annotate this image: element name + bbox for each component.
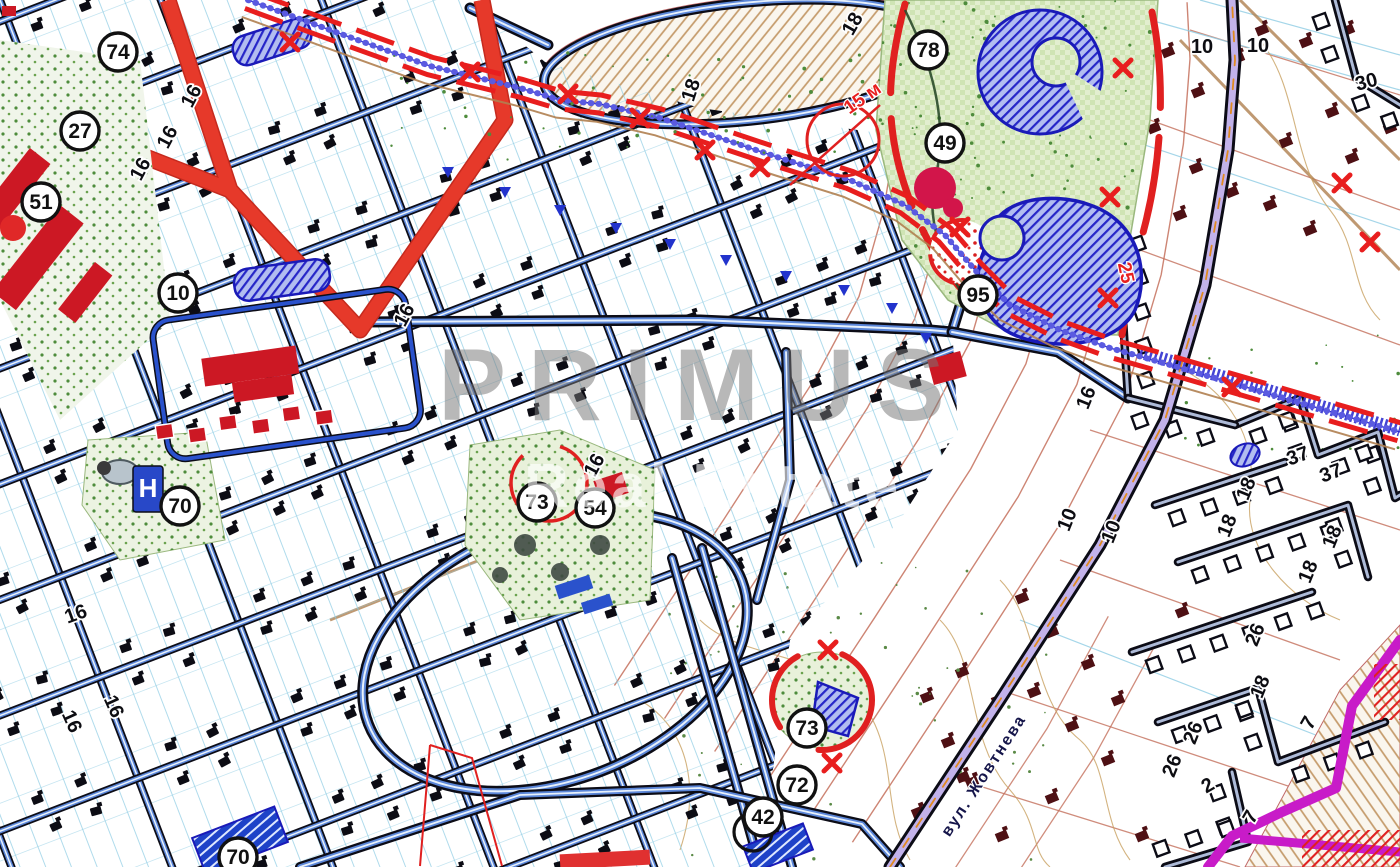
zone-marker-70: 70: [161, 487, 199, 525]
street-number-label: 10: [1191, 36, 1213, 58]
svg-text:72: 72: [785, 774, 808, 797]
street-number-label: 10: [1247, 35, 1269, 57]
zone-marker-95: 95: [959, 276, 997, 314]
street-number-label: 16: [153, 122, 183, 152]
svg-text:51: 51: [29, 191, 53, 214]
zone-marker-73: 73: [518, 483, 556, 521]
street-number-label: 26: [1158, 751, 1187, 780]
zone-marker-49: 49: [926, 124, 964, 162]
svg-text:70: 70: [168, 495, 191, 518]
svg-text:27: 27: [68, 120, 91, 143]
street-number-label: 7: [1296, 713, 1321, 734]
street-number-label: 18: [1294, 557, 1323, 586]
svg-text:70: 70: [226, 846, 249, 867]
svg-text:73: 73: [525, 491, 548, 514]
zone-marker-78: 78: [909, 31, 947, 69]
street-number-label: 16: [1072, 383, 1101, 412]
svg-text:74: 74: [106, 41, 130, 64]
red-x-mark: [1362, 234, 1378, 250]
street-number-label: 10: [1053, 505, 1082, 534]
zone-marker-74: 74: [99, 33, 137, 71]
svg-text:73: 73: [795, 717, 818, 740]
svg-text:95: 95: [966, 284, 990, 307]
map-svg: H161616161616161618181010301637371818181…: [0, 0, 1400, 867]
svg-text:49: 49: [933, 132, 956, 155]
zone-marker-27: 27: [61, 112, 99, 150]
map-canvas[interactable]: H161616161616161618181010301637371818181…: [0, 0, 1400, 867]
svg-text:54: 54: [583, 497, 607, 520]
svg-text:10: 10: [166, 282, 189, 305]
street-number-label: 18: [1213, 511, 1242, 540]
street-number-label: 26: [1179, 718, 1208, 747]
street-number-label: 37: [1284, 442, 1312, 470]
street-number-label: 26: [1241, 620, 1270, 649]
zone-marker-70: 70: [219, 838, 257, 867]
hospital-icon: H: [133, 466, 163, 512]
zone-marker-72: 72: [778, 766, 816, 804]
zone-marker-51: 51: [22, 183, 60, 221]
svg-text:78: 78: [916, 39, 940, 62]
zone-marker-10: 10: [159, 274, 197, 312]
svg-text:H: H: [139, 473, 158, 503]
red-x-mark: [824, 755, 840, 771]
svg-text:42: 42: [751, 806, 774, 829]
street-number-label: 18: [1246, 672, 1275, 701]
zone-marker-73: 73: [788, 709, 826, 747]
zone-marker-54: 54: [576, 489, 614, 527]
